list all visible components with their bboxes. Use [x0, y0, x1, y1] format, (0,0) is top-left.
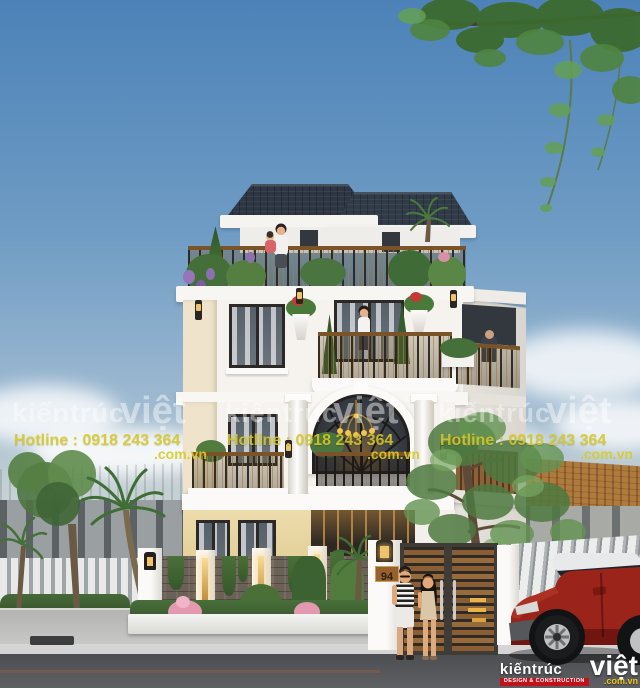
- tree-branch-foliage: [320, 0, 640, 245]
- logo-tagline: DESIGN & CONSTRUCTION: [500, 678, 589, 687]
- fence-vines: [168, 556, 184, 590]
- watermark-tile: kiếntrúcviệt Hotline : 0918 243 364 .com…: [217, 398, 430, 462]
- gate-light-slit: [468, 608, 486, 612]
- terrace-plant: [388, 250, 432, 290]
- architectural-render: 94: [0, 0, 640, 688]
- third-floor-balcony-railing: [318, 332, 452, 380]
- wall-lamp: [195, 300, 202, 320]
- watermark-brand: kiếntrúc: [438, 398, 551, 429]
- road-line: [0, 670, 380, 673]
- gate-handle: [453, 580, 456, 620]
- watermark-brand-accent: việt: [546, 390, 611, 433]
- wall-lamp: [296, 288, 303, 304]
- sitting-person-head: [485, 330, 494, 339]
- logo-brand-second: việt: [590, 655, 638, 677]
- purple-flowers: [206, 268, 215, 280]
- terrace-plant: [300, 258, 346, 288]
- watermark-domain: .com.vn: [154, 446, 207, 462]
- logo-domain: .com.vn: [604, 677, 638, 686]
- pink-flowers: [438, 252, 450, 262]
- drain-grate: [30, 636, 74, 645]
- brand-logo: kiếntrúc DESIGN & CONSTRUCTION việt .com…: [500, 655, 638, 686]
- pink-flower-cluster: [176, 596, 190, 608]
- side-planter-greens: [440, 338, 478, 358]
- wall-lamp: [450, 290, 457, 308]
- mother-and-child-figure: [254, 220, 304, 278]
- watermark-brand: kiếntrúc: [225, 398, 338, 429]
- purple-flowers: [183, 270, 195, 284]
- fence-lantern-glass: [147, 557, 153, 566]
- watermark-brand: kiếntrúc: [12, 398, 125, 429]
- pillar-light: [202, 558, 208, 602]
- watermark-brand-accent: việt: [120, 390, 185, 433]
- planter-flowers-red: [410, 292, 422, 302]
- logo-brand-first: kiếntrúc: [500, 662, 562, 677]
- gate-light-slit: [470, 598, 486, 602]
- gate-lantern-glass: [380, 546, 389, 558]
- red-suv-car: [505, 545, 640, 665]
- gate-light-slit: [472, 618, 486, 622]
- fence-vines: [238, 556, 248, 582]
- watermark-tile: kiếntrúcviệt Hotline : 0918 243 364 .com…: [430, 398, 640, 462]
- fence-vines: [222, 556, 236, 596]
- window-sill: [226, 368, 288, 374]
- watermark-brand-accent: việt: [333, 390, 398, 433]
- watermark-tile: kiếntrúcviệt Hotline : 0918 243 364 .com…: [4, 398, 217, 462]
- watermark-domain: .com.vn: [367, 446, 420, 462]
- couple-figures: [384, 562, 448, 666]
- planter-low-wall: [128, 614, 382, 634]
- window: [229, 304, 285, 368]
- watermark-domain: .com.vn: [580, 446, 633, 462]
